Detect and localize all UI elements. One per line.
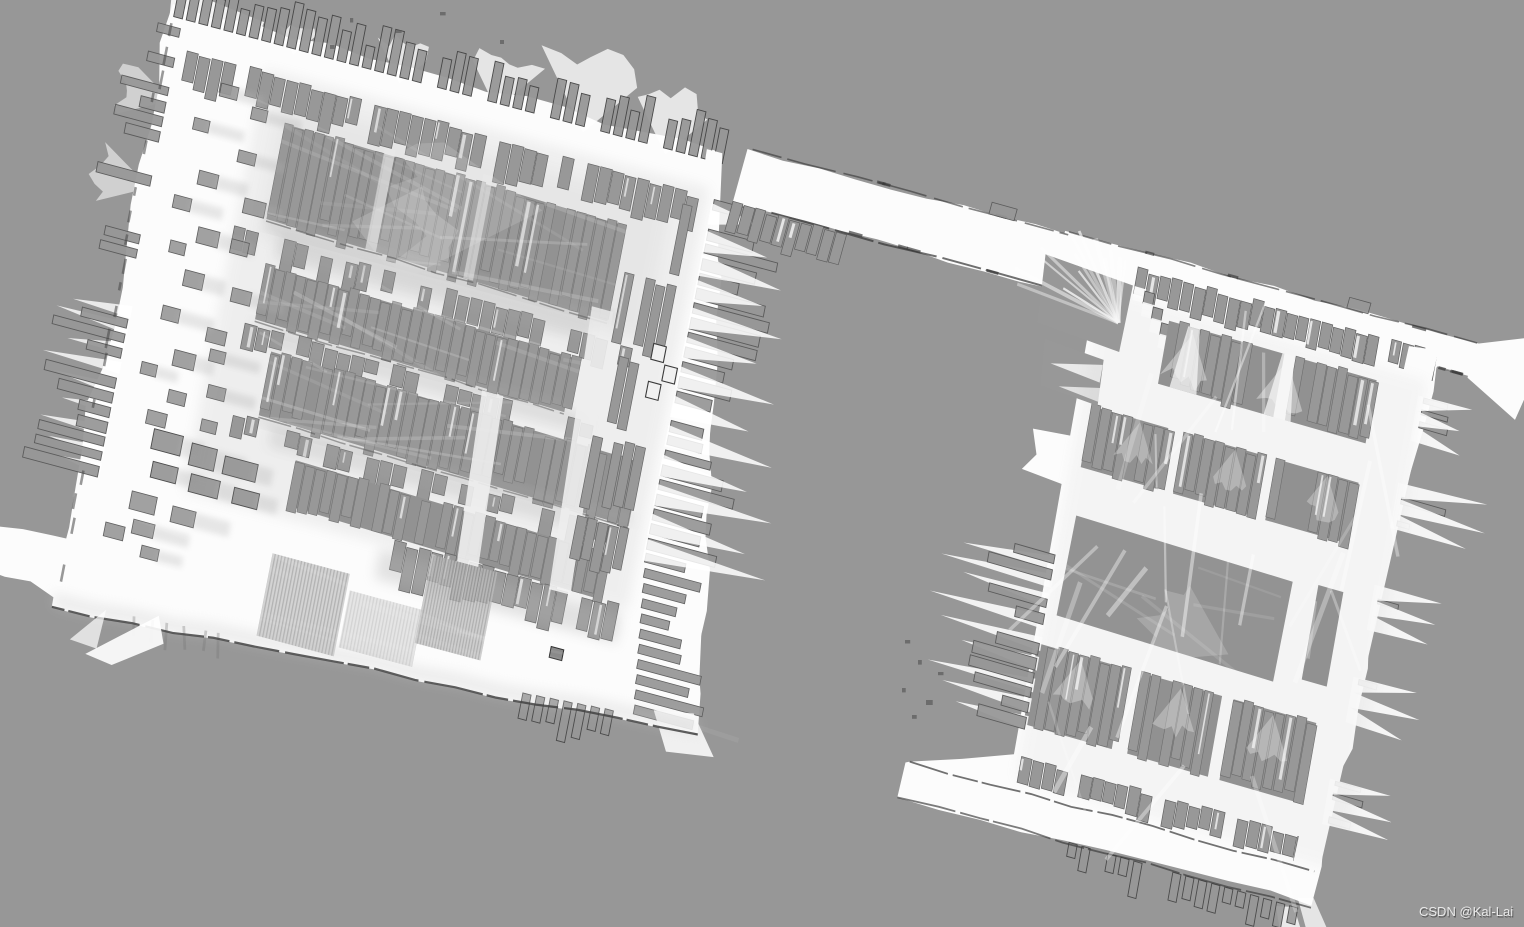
svg-text:CSDN @Kal-Lai: CSDN @Kal-Lai (1419, 904, 1513, 919)
